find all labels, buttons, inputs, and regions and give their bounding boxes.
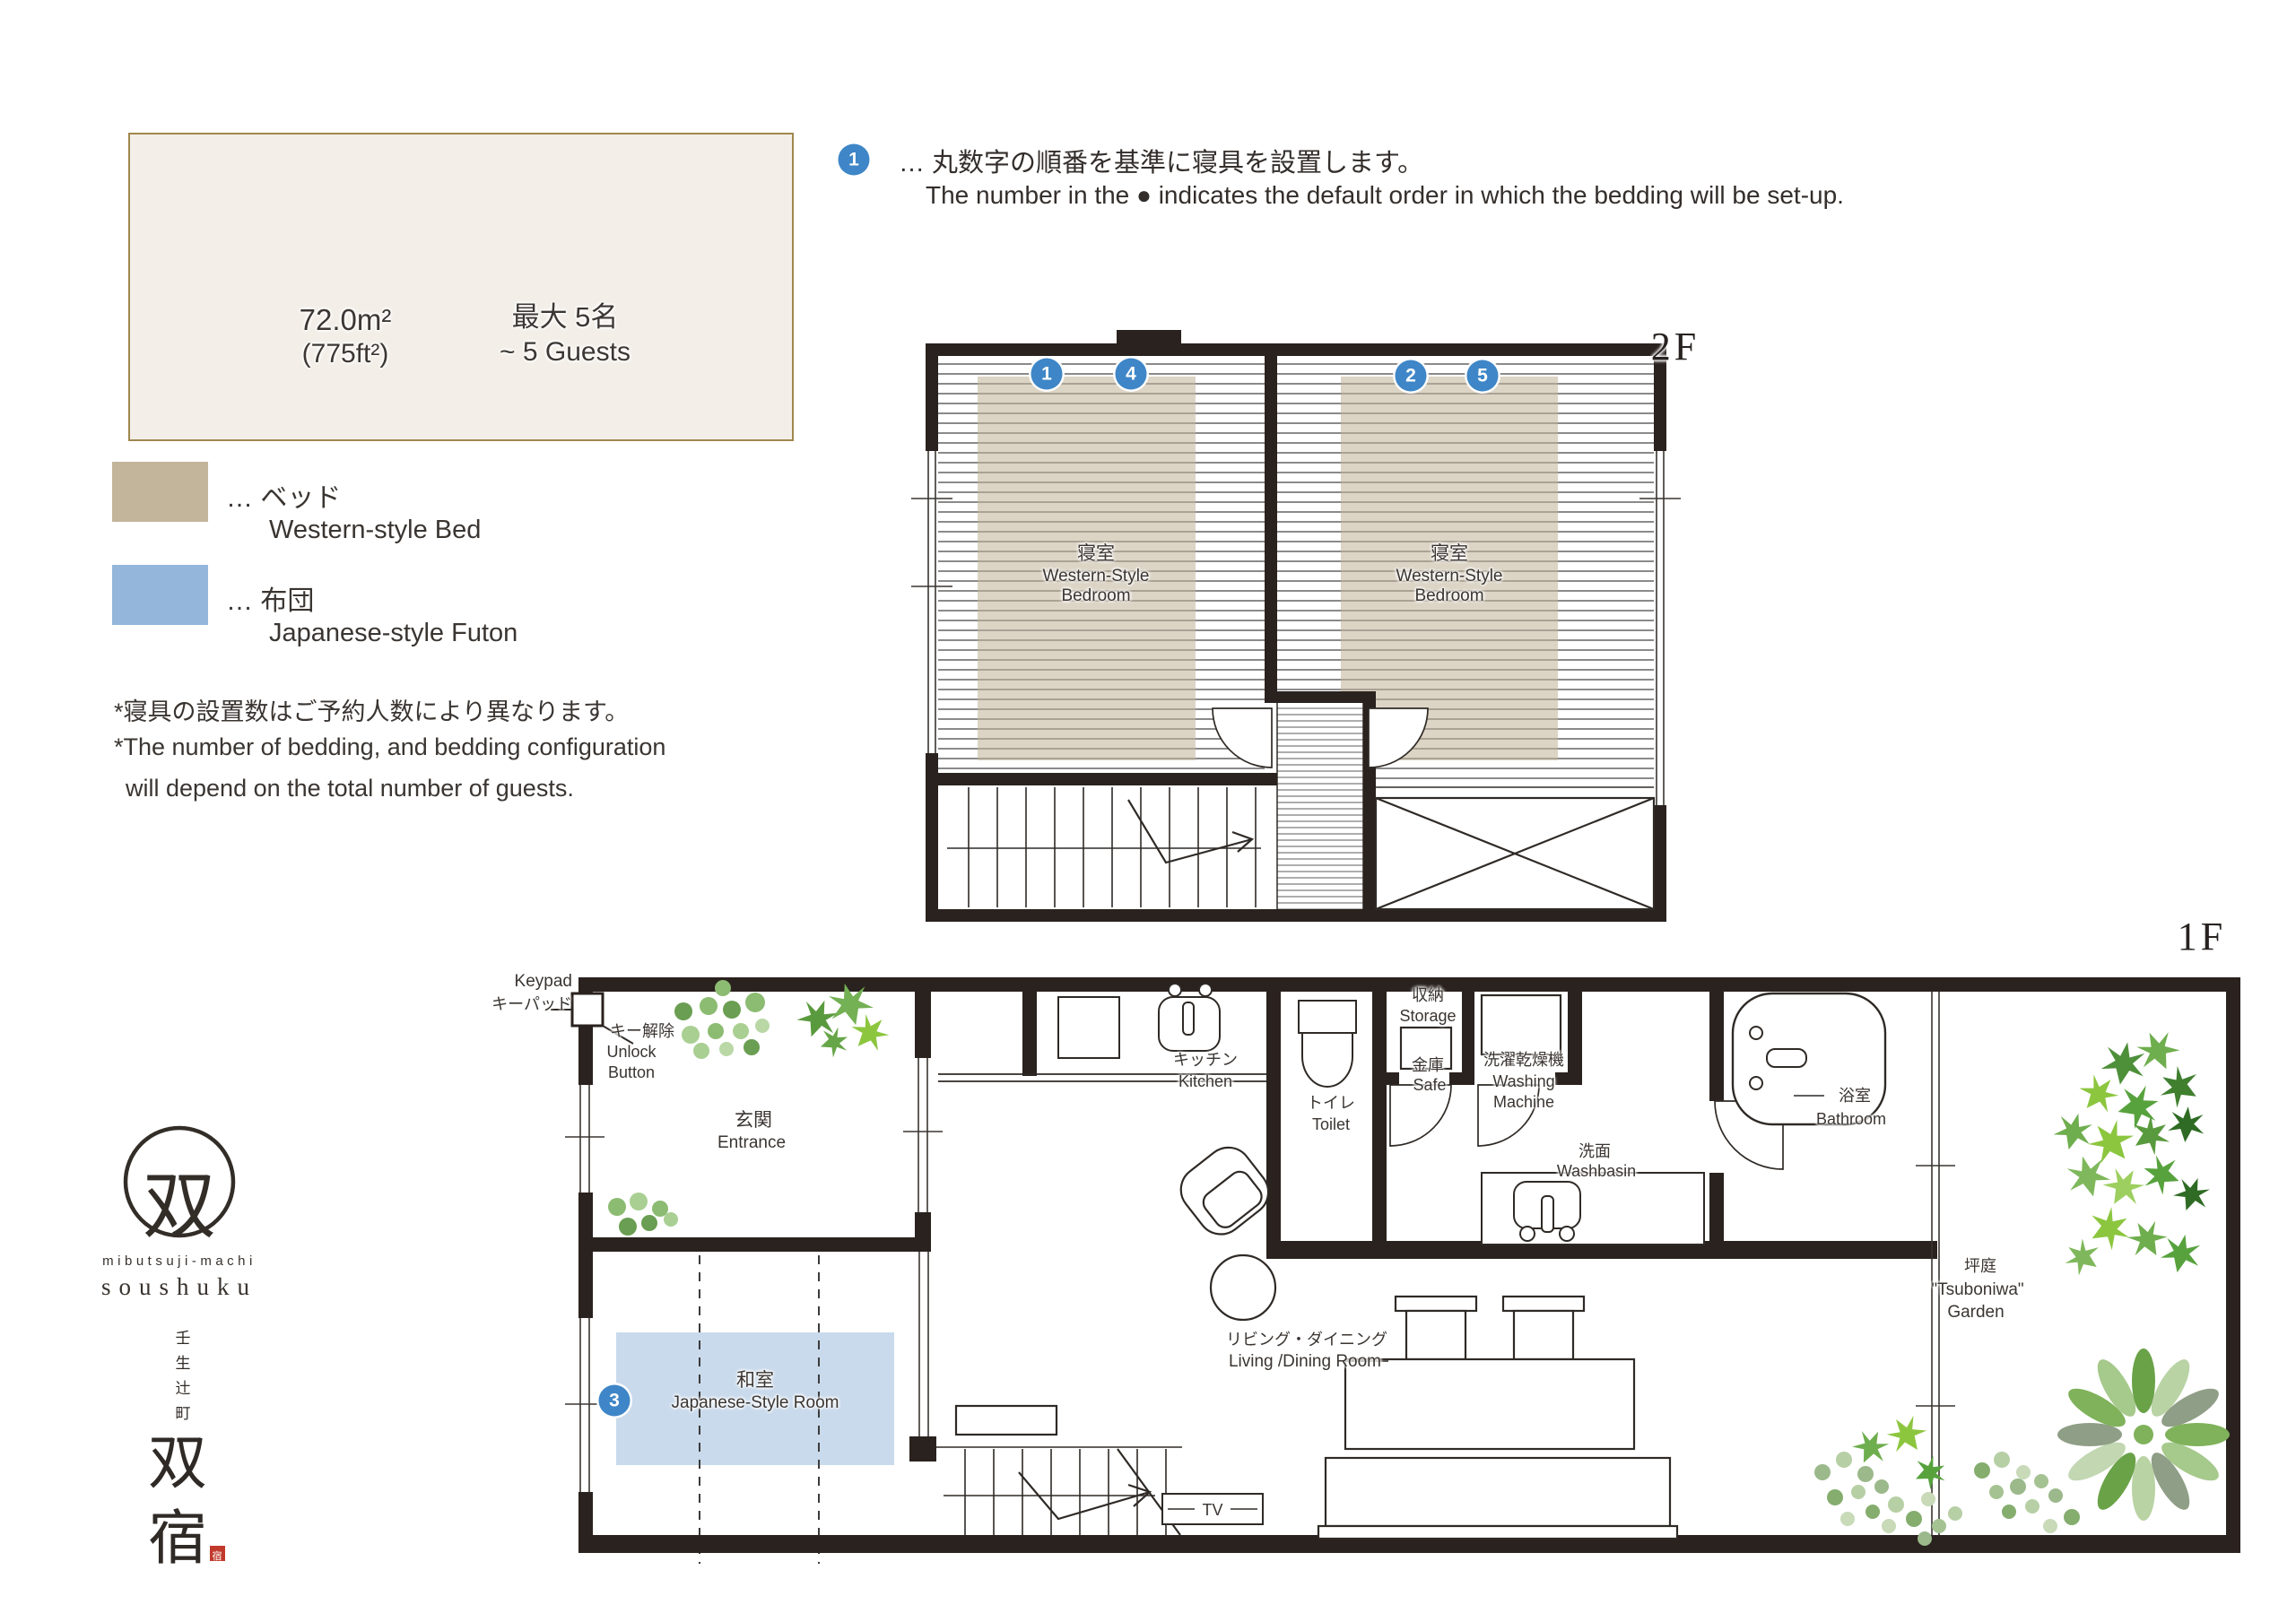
note-line-1: *寝具の設置数はご予約人数により異なります。 xyxy=(114,692,629,727)
floor1-stairs xyxy=(936,1447,1182,1535)
bath-label-jp: 浴室 xyxy=(1839,1087,1871,1106)
entrance-plants xyxy=(608,978,895,1236)
bedroom-right-label-jp: 寝室 xyxy=(1431,543,1468,565)
logo-brand-2: 宿 xyxy=(148,1490,207,1576)
bed-order-5: 5 xyxy=(1467,360,1499,392)
legend-futon-en: Japanese-style Futon xyxy=(269,619,517,648)
note-line-2: *The number of bedding, and bedding conf… xyxy=(114,733,665,761)
area-m2: 72.0m² xyxy=(300,303,392,337)
floorplan-page: 72.0m² (775ft²) 最大 5名 ~ 5 Guests … ベッド W… xyxy=(0,0,2296,1622)
room-info-box xyxy=(128,133,794,441)
legend-bed-en: Western-style Bed xyxy=(269,516,481,545)
unlock-label-en2: Button xyxy=(608,1063,655,1082)
washer-label-en1: Washing xyxy=(1492,1072,1554,1091)
legend-bed-swatch xyxy=(112,462,208,522)
note-line-3: will depend on the total number of guest… xyxy=(126,775,574,802)
capacity-en: ~ 5 Guests xyxy=(500,337,631,369)
logo-address-1: 壬 xyxy=(176,1325,191,1348)
washing-machine-box xyxy=(1482,995,1561,1054)
toilet-fixture xyxy=(1299,1001,1356,1087)
area-ft2: (775ft²) xyxy=(302,339,389,370)
entrance-label-jp: 玄関 xyxy=(735,1110,772,1132)
logo-brand-1: 双 xyxy=(148,1415,207,1501)
garden-label-en2: Garden xyxy=(1947,1303,2004,1323)
bath-label-en: Bathroom xyxy=(1816,1110,1886,1129)
logo-seal-char: 宿 xyxy=(213,1548,222,1563)
bed-order-1: 1 xyxy=(1031,359,1063,390)
bed-order-2: 2 xyxy=(1396,360,1427,392)
floor2-plan xyxy=(911,330,1681,922)
safe-label-en: Safe xyxy=(1413,1076,1446,1095)
kitchen-label-en: Kitchen xyxy=(1178,1072,1232,1091)
tatami-label-jp: 和室 xyxy=(736,1370,774,1392)
bed-order-4: 4 xyxy=(1116,359,1147,390)
washbasin-label-jp: 洗面 xyxy=(1578,1142,1611,1161)
unlock-label-en1: Unlock xyxy=(606,1043,656,1062)
legend-bed-jp: … ベッド xyxy=(226,475,341,515)
bedroom-left-label-jp: 寝室 xyxy=(1077,543,1115,565)
logo-name: soushuku xyxy=(101,1273,257,1301)
garden-label-jp: 坪庭 xyxy=(1964,1257,1996,1276)
garden-bush xyxy=(2057,1349,2230,1521)
capacity-jp: 最大 5名 xyxy=(512,301,619,334)
washer-label-en2: Machine xyxy=(1493,1093,1554,1112)
tv-label: TV xyxy=(1202,1501,1222,1520)
toilet-label-jp: トイレ xyxy=(1307,1094,1355,1113)
garden-label-en1: "Tsuboniwa" xyxy=(1931,1280,2023,1300)
washbasin-fixture xyxy=(1482,1173,1704,1245)
unlock-label-jp: キー解除 xyxy=(610,1022,674,1041)
bedroom-left-label-en2: Bedroom xyxy=(1061,586,1130,606)
floor1-tag: 1F xyxy=(2178,915,2226,960)
logo-subtitle: mibutsuji-machi xyxy=(102,1253,257,1269)
living-label-jp: リビング・ダイニング xyxy=(1226,1331,1387,1349)
bedroom-right-label-en2: Bedroom xyxy=(1414,586,1483,606)
logo-address-3: 辻 xyxy=(176,1375,191,1398)
futon-order-3: 3 xyxy=(599,1385,631,1417)
tatami-label-en: Japanese-Style Room xyxy=(672,1393,839,1413)
bedroom-right-label-en1: Western-Style xyxy=(1396,567,1503,586)
logo-address-2: 生 xyxy=(176,1350,191,1373)
floor2-tag: 2F xyxy=(1651,325,1700,370)
toilet-label-en: Toilet xyxy=(1312,1115,1350,1134)
living-label-en: Living /Dining Room xyxy=(1229,1352,1381,1372)
bedroom-left-label-en1: Western-Style xyxy=(1043,567,1150,586)
kitchen-label-jp: キッチン xyxy=(1173,1051,1238,1070)
annotation-en: The number in the ● indicates the defaul… xyxy=(926,181,1844,210)
legend-futon-jp: … 布団 xyxy=(226,578,314,618)
storage-label-en: Storage xyxy=(1399,1007,1456,1026)
keypad-label-en: Keypad xyxy=(515,972,572,992)
entrance-label-en: Entrance xyxy=(717,1133,786,1153)
safe-label-jp: 金庫 xyxy=(1412,1056,1444,1075)
floor2-void xyxy=(1376,787,1654,909)
floor2-stairs xyxy=(947,787,1261,907)
storage-label-jp: 収納 xyxy=(1412,986,1444,1005)
annotation-jp: … 丸数字の順番を基準に寝具を設置します。 xyxy=(899,142,1423,179)
keypad-label-jp: キーパッド xyxy=(491,995,572,1014)
washer-label-jp: 洗濯乾燥機 xyxy=(1483,1051,1564,1070)
annotation-number-bubble: 1 xyxy=(839,144,870,176)
logo-mark: 双 xyxy=(143,1146,216,1253)
legend-futon-swatch xyxy=(112,565,208,625)
garden-pebbles xyxy=(1814,1452,2080,1546)
washbasin-label-en: Washbasin xyxy=(1557,1162,1636,1181)
